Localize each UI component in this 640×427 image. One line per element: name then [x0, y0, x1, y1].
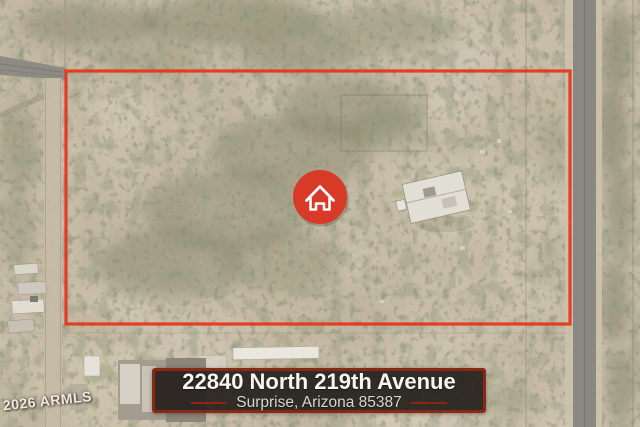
address-line1: 22840 North 219th Avenue [182, 371, 455, 393]
address-line2-row: Surprise, Arizona 85387 [191, 395, 446, 411]
address-line2: Surprise, Arizona 85387 [236, 395, 401, 411]
listing-aerial-photo: 22840 North 219th Avenue Surprise, Arizo… [0, 0, 640, 427]
banner-dash-left [191, 402, 227, 404]
banner-dash-right [411, 402, 447, 404]
address-banner: 22840 North 219th Avenue Surprise, Arizo… [152, 368, 486, 413]
aerial-photo-canvas [0, 0, 640, 427]
